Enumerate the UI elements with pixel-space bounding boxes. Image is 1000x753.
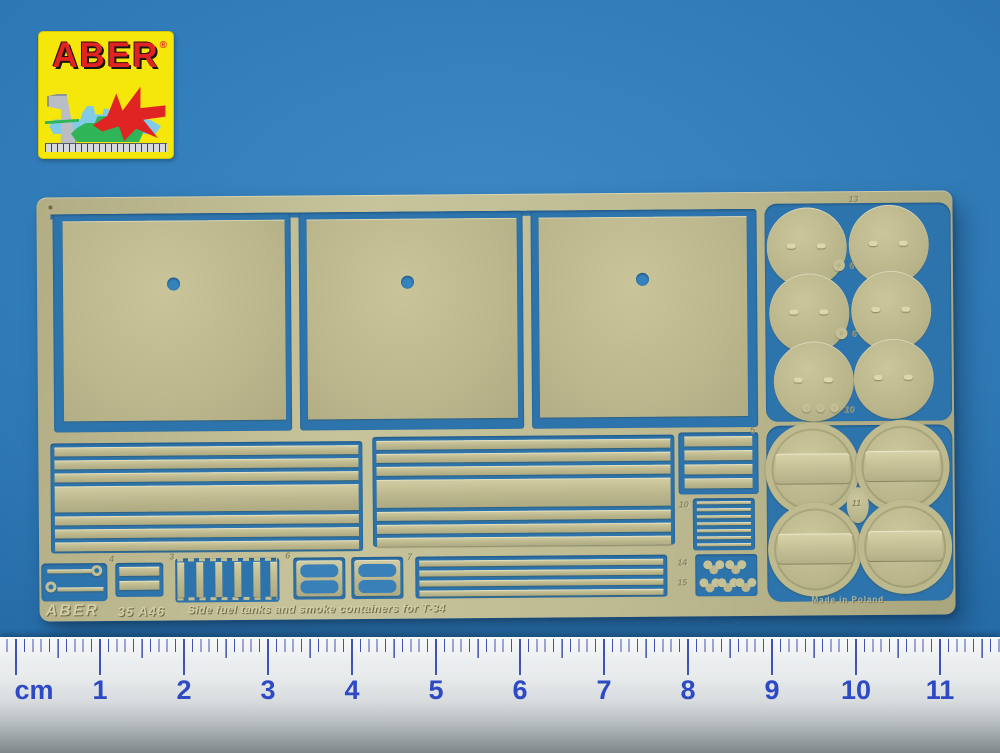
- ruler-number: 3: [260, 675, 275, 706]
- strip-part: [697, 508, 751, 511]
- panel-hole: [401, 276, 414, 289]
- ruler-number: 2: [176, 675, 191, 706]
- ring-part: [816, 403, 825, 412]
- clover-part: [699, 578, 708, 587]
- ruler-mm-ticks: [0, 639, 1000, 652]
- spanner-part: [47, 569, 93, 573]
- product-photo: ABER ®: [0, 0, 1000, 753]
- part-number: 15: [677, 579, 687, 588]
- strip-part: [684, 464, 752, 475]
- comb-bar: [270, 562, 277, 597]
- part-number: 6: [849, 261, 854, 270]
- ruler-number: 9: [764, 675, 779, 706]
- comb-bar: [253, 562, 260, 597]
- ruler-unit-label: cm: [14, 675, 53, 706]
- strip-part: [697, 529, 751, 532]
- strip-part: [684, 450, 752, 461]
- part-number: 4: [109, 555, 114, 564]
- etched-square-panel: [539, 216, 749, 418]
- pair-slot: [358, 580, 396, 593]
- aber-logo: ABER ®: [38, 31, 174, 159]
- ruler-number: 7: [596, 675, 611, 706]
- spanner-ring: [91, 565, 102, 576]
- ruler-number: 4: [344, 675, 359, 706]
- strip-part: [697, 543, 751, 546]
- ring-part: [802, 404, 811, 413]
- ring-part: [830, 403, 839, 412]
- ring-part: [835, 327, 847, 339]
- clover-part: [717, 578, 726, 587]
- part-number: 11: [852, 499, 861, 508]
- strip-part: [684, 436, 752, 447]
- part-number: 7: [407, 553, 412, 562]
- strip-part: [697, 536, 751, 539]
- ruler-number: 1: [92, 675, 107, 706]
- panel-hole: [636, 273, 649, 286]
- disc-part: [774, 341, 855, 422]
- etched-brand-text: ABER: [46, 603, 99, 619]
- ruler-icon: [45, 143, 167, 152]
- strip-part: [697, 522, 751, 525]
- strip-part: [697, 515, 751, 518]
- spanner-ring: [45, 581, 56, 592]
- ruler-number: 8: [680, 675, 695, 706]
- aber-logo-text: ABER: [39, 38, 173, 73]
- etched-square-panel: [307, 218, 519, 420]
- etched-product-title: Side fuel tanks and smoke containers for…: [188, 603, 446, 616]
- strip-part: [697, 501, 751, 504]
- ruler-number: 10: [841, 675, 871, 706]
- part-number: 13: [848, 195, 858, 204]
- etched-footnote: Made in Poland: [812, 596, 885, 605]
- ring-part: [833, 259, 845, 271]
- comb-bar: [177, 562, 184, 597]
- comb-bar: [196, 562, 203, 597]
- clover-part: [735, 578, 744, 587]
- spanner-part: [57, 587, 103, 591]
- comb-bar: [215, 562, 222, 597]
- slotted-lid-part: [858, 499, 953, 594]
- buckle-part: [119, 567, 159, 576]
- pair-slot: [300, 564, 338, 577]
- clover-part: [725, 560, 734, 569]
- panel-hole: [167, 277, 180, 290]
- part-number: 10: [844, 405, 854, 414]
- registered-trademark-icon: ®: [160, 40, 167, 51]
- ruler-number: 5: [428, 675, 443, 706]
- ruler-number: 6: [512, 675, 527, 706]
- etched-product-code: 35 A46: [118, 605, 166, 618]
- wide-strip-part: [377, 478, 671, 508]
- part-number: 10: [679, 500, 689, 509]
- disc-part: [853, 339, 934, 420]
- part-number: 14: [677, 559, 687, 568]
- ruler-number: 11: [926, 675, 955, 706]
- ruler: cm 1 2 3 4 5 6 7 8 9 10 11: [0, 637, 1000, 753]
- wide-strip-part: [55, 484, 359, 512]
- buckle-part: [119, 581, 159, 590]
- frame-hole: [48, 205, 52, 209]
- strip-part: [377, 536, 671, 547]
- pair-slot: [358, 564, 396, 577]
- part-number: 3: [169, 553, 174, 562]
- comb-bar: [234, 562, 241, 597]
- part-number: 6: [851, 329, 856, 338]
- etched-square-panel: [63, 220, 287, 422]
- part-number: 5: [750, 426, 755, 435]
- cutout-area: [175, 558, 279, 603]
- logo-artwork: [43, 80, 169, 152]
- pair-slot: [300, 580, 338, 593]
- photo-etched-fret: 13 6 6 10 11 5 10 14: [36, 190, 955, 621]
- part-number: 6: [285, 552, 290, 561]
- clover-part: [703, 560, 712, 569]
- strip-part: [685, 478, 753, 489]
